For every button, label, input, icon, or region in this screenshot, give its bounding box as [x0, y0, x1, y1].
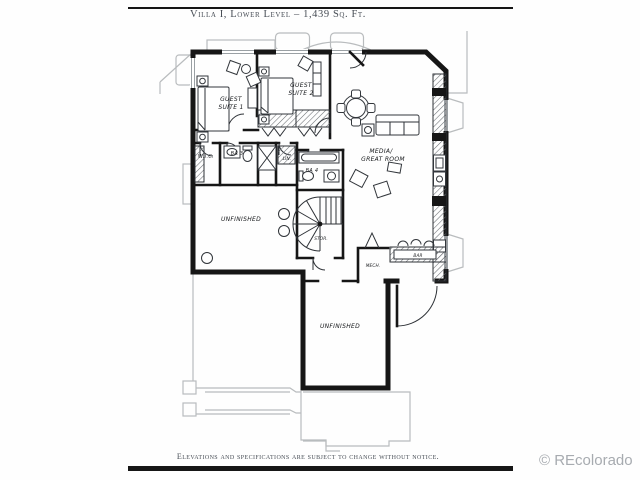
lounge-chair [373, 181, 390, 198]
svg-text:SUITE 2: SUITE 2 [288, 90, 313, 97]
ottoman [387, 162, 401, 173]
label-media-great-room: MEDIA/ [369, 148, 393, 155]
side-table [242, 65, 251, 74]
label-mech: MECH. [366, 263, 381, 269]
bottom-rule [128, 466, 513, 471]
sofa [376, 115, 419, 135]
chair [226, 60, 240, 74]
lounge-chair [350, 169, 368, 187]
great-room-furniture [337, 74, 446, 281]
svg-text:SUITE 1: SUITE 1 [218, 104, 243, 111]
disclaimer-text: Elevations and specifications are subjec… [177, 452, 439, 461]
label-wic: W.I.C. [198, 154, 214, 160]
media-niche [434, 155, 446, 171]
chair [298, 56, 313, 71]
bath-fixtures [195, 146, 339, 182]
dining-chair [367, 104, 375, 113]
spiral-staircase [293, 197, 343, 251]
wic-shelving [195, 146, 204, 182]
dresser [313, 62, 321, 96]
toilet-tank [243, 146, 252, 150]
label-storage: STOR. [314, 236, 328, 242]
label-unfinished-upper: UNFINISHED [221, 216, 261, 223]
toilet [243, 151, 252, 162]
label-bar: BAR [413, 253, 422, 259]
bar-stools [398, 240, 434, 247]
recolorado-watermark: © REcolorado [539, 452, 633, 469]
label-bath4: BA 4 [306, 168, 319, 174]
floorplan-sheet: Villa I, Lower Level – 1,439 Sq. Ft. [0, 0, 640, 480]
dining-chair [337, 104, 345, 113]
dining-chair [352, 118, 361, 126]
label-bath3: BA 3 [231, 151, 244, 157]
label-guest-suite-1: GUEST [220, 96, 243, 103]
floorplan-drawing: GUEST SUITE 1 GUEST SUITE 2 MEDIA/ GREAT… [0, 0, 640, 480]
dining-chair [352, 90, 361, 98]
end-table [362, 124, 374, 136]
label-linen: LIN. [283, 156, 292, 162]
dresser [248, 88, 257, 108]
label-guest-suite-2: GUEST [290, 82, 313, 89]
svg-text:GREAT ROOM: GREAT ROOM [361, 156, 405, 163]
label-unfinished-lower: UNFINISHED [320, 323, 360, 330]
